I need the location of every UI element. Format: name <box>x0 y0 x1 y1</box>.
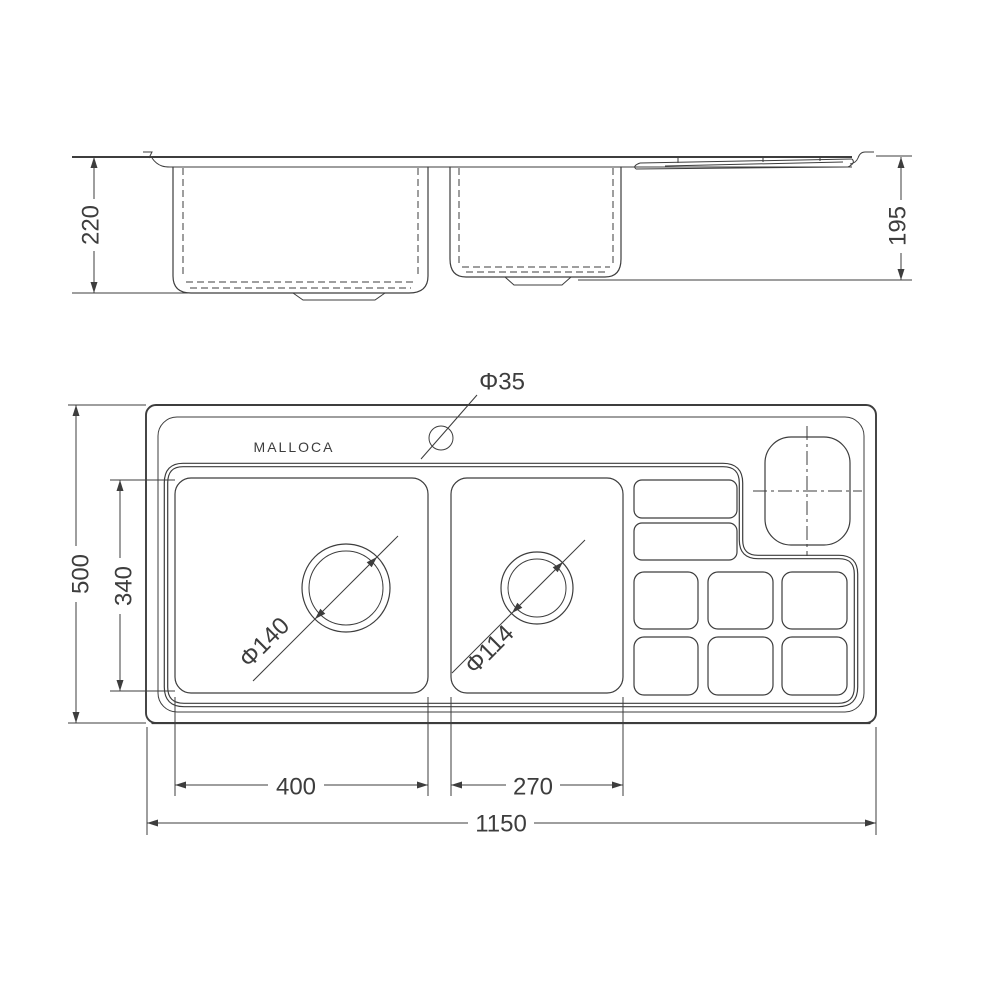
arrowhead <box>147 820 158 827</box>
sink-deck-edge <box>158 417 864 712</box>
arrowhead <box>451 782 462 789</box>
arrowhead <box>117 680 124 691</box>
arrowhead <box>73 712 80 723</box>
front-right-bowl <box>450 167 621 285</box>
tray-square-5 <box>708 637 773 695</box>
front-right-drain-bump <box>505 277 571 285</box>
dimension-1150: 1150 <box>147 727 876 837</box>
tray-wide-1 <box>634 480 737 518</box>
front-left-drain-bump <box>293 293 385 300</box>
technical-drawing-page: 220 195 <box>0 0 1000 1000</box>
dim-220-label: 220 <box>77 205 104 245</box>
tray-square-3 <box>782 572 847 629</box>
dimension-400: 400 <box>175 697 428 800</box>
left-drain-label: Φ140 <box>234 612 295 673</box>
tray-square-4 <box>634 637 698 695</box>
arrowhead <box>898 157 905 168</box>
left-drain-callout: Φ140 <box>234 536 398 681</box>
arrowhead <box>91 157 98 168</box>
front-view: 220 195 <box>72 152 912 300</box>
arrowhead <box>898 269 905 280</box>
arrowhead <box>612 782 623 789</box>
dimension-195: 195 <box>578 157 912 280</box>
dim-400-label: 400 <box>276 773 316 800</box>
arrowhead <box>73 405 80 416</box>
arrowhead <box>417 782 428 789</box>
dim-500-label: 500 <box>67 554 94 594</box>
tray-square-2 <box>708 572 773 629</box>
dimension-270: 270 <box>451 697 623 800</box>
bowl-rim-outline <box>166 465 856 705</box>
dim-340-label: 340 <box>110 566 137 606</box>
brand-label: MALLOCA <box>254 439 335 455</box>
dim-195-label: 195 <box>884 206 911 246</box>
front-left-bowl <box>173 167 428 300</box>
tray-square-1 <box>634 572 698 629</box>
dimension-220: 220 <box>72 157 188 293</box>
sink-technical-drawing: 220 195 <box>0 0 1000 1000</box>
dimension-500: 500 <box>67 405 146 723</box>
arrowhead <box>865 820 876 827</box>
tray-wide-2 <box>634 523 737 560</box>
faucet-hole: Φ35 <box>421 368 525 459</box>
plan-view: Φ35 MALLOCA Φ140 Φ114 500 <box>67 368 876 837</box>
tray-square-6 <box>782 637 847 695</box>
colander-holder <box>753 426 862 556</box>
arrowhead <box>175 782 186 789</box>
right-drain-label: Φ114 <box>460 620 520 680</box>
dim-1150-label: 1150 <box>475 810 527 837</box>
arrowhead <box>91 282 98 293</box>
dim-270-label: 270 <box>513 773 553 800</box>
faucet-hole-label: Φ35 <box>479 368 525 395</box>
arrowhead <box>117 480 124 491</box>
